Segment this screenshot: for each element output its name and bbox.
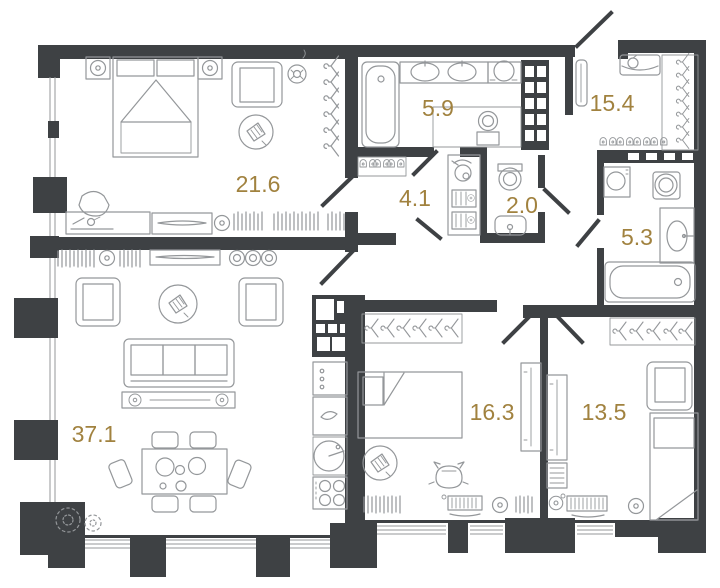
toilet-icon <box>498 164 522 190</box>
room-label: 13.5 <box>582 399 627 425</box>
rug-plant-icon <box>363 446 397 480</box>
pendant-lights-icon <box>230 251 277 266</box>
chair-icon <box>227 459 253 489</box>
wardrobe-panel-icon <box>547 375 567 460</box>
hanger-rail-icon <box>324 56 339 156</box>
room-bathroom-second: 5.3 <box>604 167 695 302</box>
vacuum-icon <box>452 160 471 181</box>
room-label: 16.3 <box>470 399 515 425</box>
radiator-icon <box>328 212 344 230</box>
shoe-rack-icon <box>358 157 406 176</box>
chair-icon <box>190 432 216 448</box>
desk-computer-icon <box>549 494 607 517</box>
mirror-icon <box>576 60 587 106</box>
room-living-kitchen: 37.1 <box>56 250 348 532</box>
oven-icon <box>313 362 347 395</box>
room-label: 5.9 <box>422 95 454 121</box>
media-console-icon <box>150 250 220 265</box>
floor-plan: 21.6 5.9 <box>0 0 720 588</box>
room-label: 2.0 <box>506 192 538 218</box>
room-label: 37.1 <box>72 421 117 447</box>
room-label: 5.3 <box>621 224 653 250</box>
room-bathroom-main: 5.9 <box>362 61 521 147</box>
kitchen-cabinets-icon <box>312 295 348 357</box>
room-bedroom-right: 13.5 <box>547 318 698 520</box>
washbasin-counter-icon <box>660 208 694 263</box>
chair-icon <box>152 432 178 448</box>
single-bed-icon <box>650 413 698 520</box>
tv-stand-icon <box>122 392 235 408</box>
bathtub-icon <box>362 62 399 147</box>
downlight-icon <box>215 216 230 231</box>
rug-plant-icon <box>159 285 197 323</box>
double-sink-icon <box>400 61 488 83</box>
downlight-icon <box>100 251 115 266</box>
sofa-icon <box>124 339 234 387</box>
shelf-unit-icon <box>547 463 567 488</box>
dining-table-icon <box>108 432 253 512</box>
room-wc: 2.0 <box>495 164 538 235</box>
washing-machine-icon <box>604 167 630 197</box>
desk-computer-icon <box>442 495 482 516</box>
radiator-icon <box>274 212 318 230</box>
nightstand-lamp-icon <box>86 57 110 79</box>
radiator-icon <box>364 496 400 513</box>
single-bed-icon <box>358 372 462 438</box>
room-label: 15.4 <box>590 90 635 116</box>
nightstand-lamp-icon <box>198 57 222 79</box>
hanger-rail-icon <box>662 54 698 151</box>
radiator-icon <box>120 250 140 267</box>
dresser-icon <box>66 212 150 234</box>
stool-icon <box>629 499 644 514</box>
round-table-icon <box>313 437 347 475</box>
wardrobe-panel-icon <box>521 363 541 451</box>
armchair-icon <box>647 362 692 410</box>
bathtub-icon <box>605 262 695 302</box>
shoe-rack-icon <box>600 138 667 145</box>
hanger-rail-icon <box>610 318 695 345</box>
cabinet-column <box>448 155 480 235</box>
drawer-icon <box>452 190 476 207</box>
dryer-icon <box>653 172 680 199</box>
drawer-icon <box>452 212 476 229</box>
room-label: 4.1 <box>399 185 431 211</box>
washbasin-icon <box>495 216 526 235</box>
cooktop-icon <box>313 477 347 509</box>
chair-icon <box>108 459 134 489</box>
double-bed-icon <box>113 57 198 157</box>
armchair-icon <box>232 62 282 107</box>
stool-icon <box>493 498 508 513</box>
rug-plant-icon <box>239 115 273 149</box>
room-label: 21.6 <box>236 171 281 197</box>
console-icon <box>152 213 212 234</box>
radiator-icon <box>516 496 532 513</box>
radiator-icon <box>234 212 262 230</box>
kitchen-sink-icon <box>313 397 347 435</box>
cat-icon <box>429 462 468 488</box>
chair-icon <box>190 496 216 512</box>
room-bedroom-middle: 16.3 <box>358 314 541 516</box>
floor-plan-canvas: 21.6 5.9 <box>0 0 720 588</box>
radiator-icon <box>58 250 94 267</box>
round-basin-icon <box>488 61 521 83</box>
armchair-icon <box>239 278 283 326</box>
room-bedroom-master: 21.6 <box>66 50 344 234</box>
armchair-icon <box>76 278 120 326</box>
hanger-rail-icon <box>362 314 462 343</box>
room-entry-hall: 15.4 <box>576 54 698 151</box>
chair-icon <box>152 496 178 512</box>
